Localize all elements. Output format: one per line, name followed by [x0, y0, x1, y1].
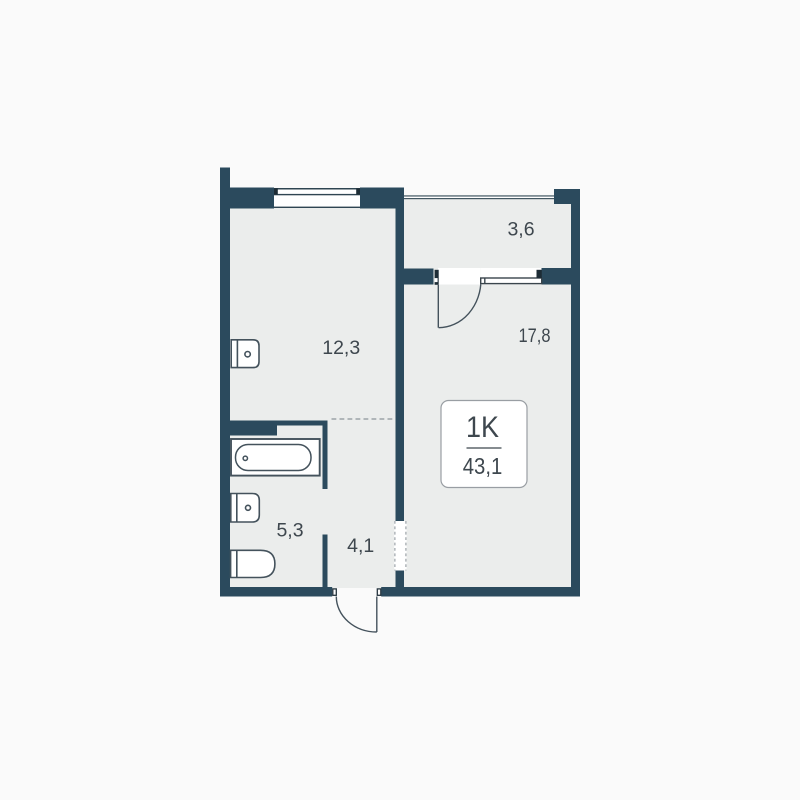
svg-text:12,3: 12,3	[322, 337, 360, 359]
svg-text:4,1: 4,1	[347, 535, 374, 557]
svg-text:5,3: 5,3	[276, 519, 303, 541]
svg-text:3,6: 3,6	[507, 219, 534, 241]
svg-text:43,1: 43,1	[463, 453, 503, 479]
svg-text:1K: 1K	[466, 411, 499, 444]
svg-text:17,8: 17,8	[519, 325, 551, 347]
